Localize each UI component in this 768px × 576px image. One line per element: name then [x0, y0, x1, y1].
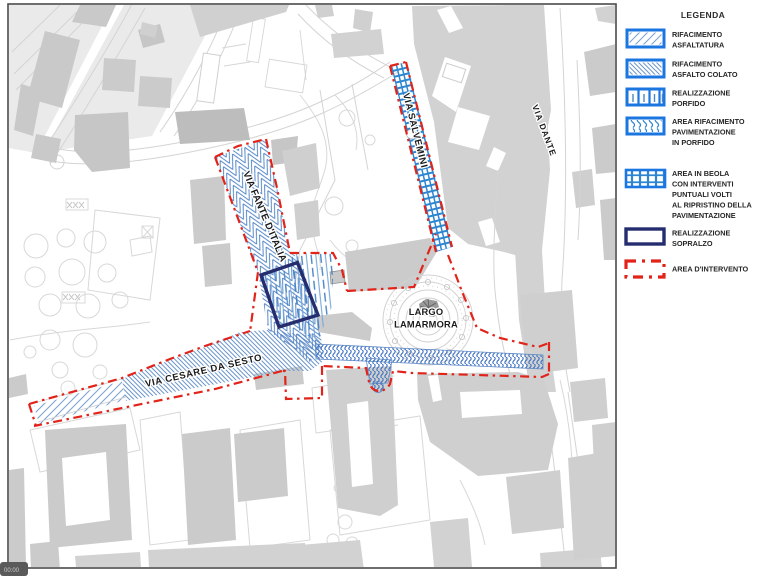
svg-text:ASFALTO COLATO: ASFALTO COLATO: [672, 70, 738, 79]
svg-text:REALIZZAZIONE: REALIZZAZIONE: [672, 229, 731, 238]
svg-text:ASFALTATURA: ASFALTATURA: [672, 41, 725, 50]
svg-text:IN PORFIDO: IN PORFIDO: [672, 138, 715, 147]
svg-text:RIFACIMENTO: RIFACIMENTO: [672, 60, 722, 69]
svg-text:CON INTERVENTI: CON INTERVENTI: [672, 180, 734, 189]
svg-text:SOPRALZO: SOPRALZO: [672, 239, 713, 248]
svg-text:LEGENDA: LEGENDA: [681, 10, 725, 20]
svg-text:PORFIDO: PORFIDO: [672, 99, 706, 108]
svg-text:PUNTUALI VOLTI: PUNTUALI VOLTI: [672, 190, 732, 199]
svg-text:RIFACIMENTO: RIFACIMENTO: [672, 30, 722, 39]
svg-text:AREA D'INTERVENTO: AREA D'INTERVENTO: [672, 265, 749, 274]
svg-text:PAVIMENTAZIONE: PAVIMENTAZIONE: [672, 128, 736, 137]
svg-text:00:00: 00:00: [4, 568, 20, 574]
svg-text:REALIZZAZIONE: REALIZZAZIONE: [672, 89, 731, 98]
svg-text:LARGO: LARGO: [409, 307, 444, 317]
svg-text:LAMARMORA: LAMARMORA: [394, 320, 458, 330]
svg-text:AREA IN BEOLA: AREA IN BEOLA: [672, 169, 730, 178]
svg-text:AL RIPRISTINO DELLA: AL RIPRISTINO DELLA: [672, 201, 752, 210]
svg-text:PAVIMENTAZIONE: PAVIMENTAZIONE: [672, 211, 736, 220]
svg-text:AREA RIFACIMENTO: AREA RIFACIMENTO: [672, 117, 745, 126]
